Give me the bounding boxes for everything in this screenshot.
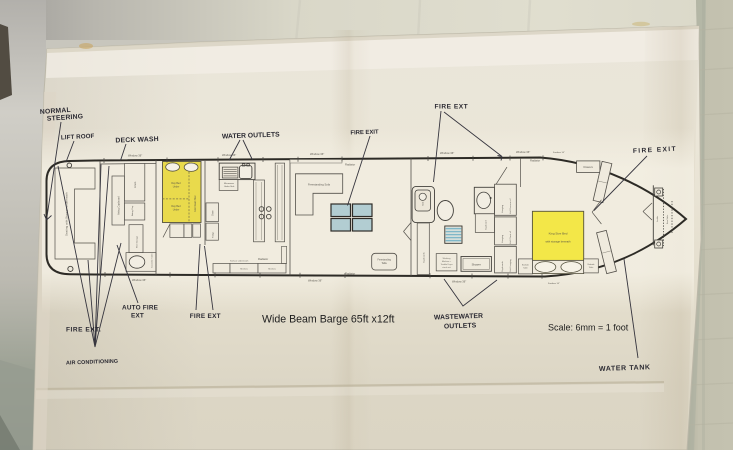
- svg-text:Window 36": Window 36": [516, 150, 530, 154]
- svg-text:Ladder: Ladder: [657, 215, 659, 222]
- svg-text:Radiator: Radiator: [345, 271, 355, 275]
- svg-text:Shelves: Shelves: [240, 269, 249, 271]
- svg-text:Fold Down Bed: Fold Down Bed: [194, 195, 197, 212]
- svg-text:Footbox 16": Footbox 16": [553, 151, 565, 154]
- svg-text:Window 36": Window 36": [132, 278, 146, 282]
- svg-text:Table: Table: [589, 267, 594, 269]
- svg-text:Shelves: Shelves: [268, 269, 277, 271]
- svg-text:Oven: Oven: [212, 210, 215, 216]
- svg-text:Table: Table: [523, 268, 528, 270]
- svg-text:Window 36": Window 36": [440, 151, 454, 155]
- svg-text:Tumble Dryer: Tumble Dryer: [440, 264, 452, 266]
- svg-text:Half Drawers x2: Half Drawers x2: [509, 198, 512, 214]
- svg-text:Freestanding Sofa: Freestanding Sofa: [308, 182, 330, 186]
- svg-text:Airing Cupboard: Airing Cupboard: [117, 196, 121, 215]
- svg-text:Freestanding: Freestanding: [377, 259, 391, 262]
- svg-text:with storage beneath: with storage beneath: [546, 240, 571, 244]
- svg-text:Radiator: Radiator: [345, 163, 355, 167]
- svg-text:Hanging: Hanging: [502, 234, 504, 243]
- svg-text:Shower: Shower: [472, 263, 481, 267]
- svg-text:Cupboards: Cupboards: [423, 251, 426, 263]
- svg-text:Half Chest x2: Half Chest x2: [509, 230, 512, 244]
- svg-text:Window 36": Window 36": [452, 279, 466, 283]
- svg-text:FIRE EXT.: FIRE EXT.: [66, 327, 101, 334]
- svg-text:Linen: Linen: [133, 181, 137, 188]
- svg-text:Hanging: Hanging: [502, 204, 504, 213]
- svg-text:Fridge: Fridge: [212, 231, 215, 238]
- svg-text:Bow Table: Bow Table: [667, 214, 669, 224]
- svg-text:Radiator: Radiator: [530, 159, 540, 163]
- svg-text:FIRE EXT: FIRE EXT: [190, 313, 221, 320]
- svg-text:Washing: Washing: [443, 258, 451, 260]
- svg-text:King Size Bed: King Size Bed: [549, 232, 568, 236]
- svg-text:Window 36": Window 36": [222, 153, 236, 157]
- svg-text:Soft Hanging: Soft Hanging: [509, 259, 512, 272]
- svg-text:Under Sink: Under Sink: [224, 185, 235, 188]
- svg-text:Cassette Toilet: Cassette Toilet: [151, 253, 154, 268]
- svg-text:Drawers: Drawers: [584, 166, 594, 169]
- svg-text:FIRE EXIT: FIRE EXIT: [350, 129, 379, 136]
- svg-text:Machine +: Machine +: [442, 261, 452, 263]
- svg-text:EXT: EXT: [131, 313, 144, 320]
- svg-text:Window 36": Window 36": [310, 152, 324, 156]
- svg-text:Surface underneath: Surface underneath: [230, 260, 249, 263]
- svg-text:Under: Under: [173, 186, 180, 189]
- svg-text:stack unit: stack unit: [442, 266, 451, 269]
- svg-text:Wide Beam Barge 65ft x12ft: Wide Beam Barge 65ft x12ft: [262, 314, 395, 326]
- svg-text:AUTO FIRE: AUTO FIRE: [122, 305, 159, 312]
- svg-text:Under: Under: [173, 209, 180, 212]
- svg-text:FIRE EXT: FIRE EXT: [435, 104, 469, 111]
- svg-text:Bedside: Bedside: [588, 264, 595, 266]
- svg-text:Cupboards: Cupboards: [501, 260, 504, 272]
- svg-text:Microwave: Microwave: [224, 182, 235, 185]
- svg-text:Radiator: Radiator: [258, 257, 268, 261]
- svg-text:Footbox 16": Footbox 16": [548, 282, 560, 285]
- svg-text:OUTLETS: OUTLETS: [444, 322, 477, 330]
- svg-text:Window 36": Window 36": [308, 279, 322, 283]
- svg-text:Scale: 6mm = 1 foot: Scale: 6mm = 1 foot: [548, 323, 629, 333]
- svg-text:Wet Storage: Wet Storage: [136, 235, 139, 248]
- svg-text:Table: Table: [381, 263, 387, 265]
- svg-text:Airing Cup: Airing Cup: [131, 205, 134, 216]
- svg-text:Window 36": Window 36": [128, 154, 142, 158]
- svg-text:Cupboard: Cupboard: [485, 220, 488, 230]
- svg-text:Bedside: Bedside: [522, 265, 529, 267]
